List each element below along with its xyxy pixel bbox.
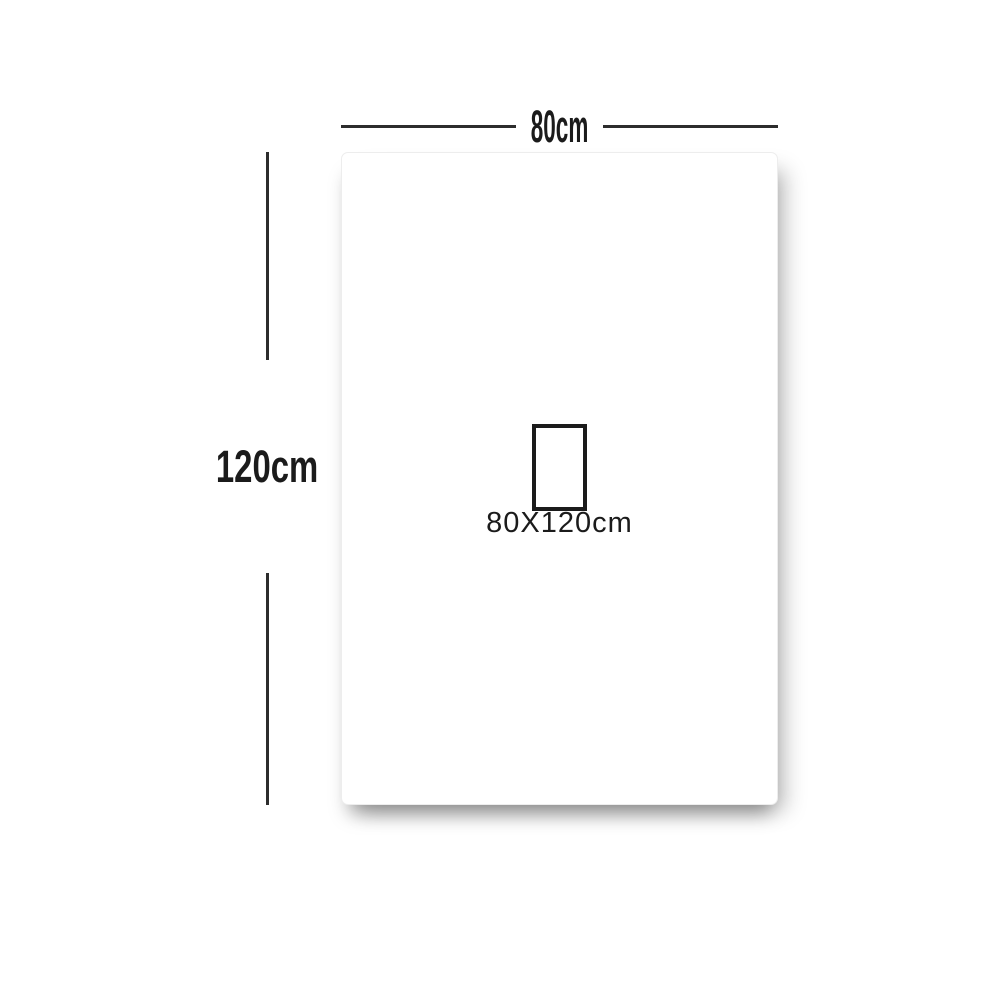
width-dimension-line-right bbox=[603, 125, 778, 128]
height-dimension-label: 120cm bbox=[216, 444, 318, 489]
product-panel: 80X120cm bbox=[341, 152, 778, 805]
size-label: 80X120cm bbox=[342, 507, 777, 540]
height-dimension-line-top bbox=[266, 152, 269, 360]
width-dimension-line-left bbox=[341, 125, 516, 128]
height-dimension: 120cm bbox=[212, 152, 322, 805]
width-dimension-label: 80cm bbox=[531, 104, 589, 149]
height-dimension-line-bottom bbox=[266, 573, 269, 805]
dimension-diagram: 80cm 120cm 80X120cm bbox=[0, 0, 1000, 1000]
width-dimension: 80cm bbox=[341, 104, 778, 148]
size-swatch-rectangle bbox=[532, 424, 587, 511]
